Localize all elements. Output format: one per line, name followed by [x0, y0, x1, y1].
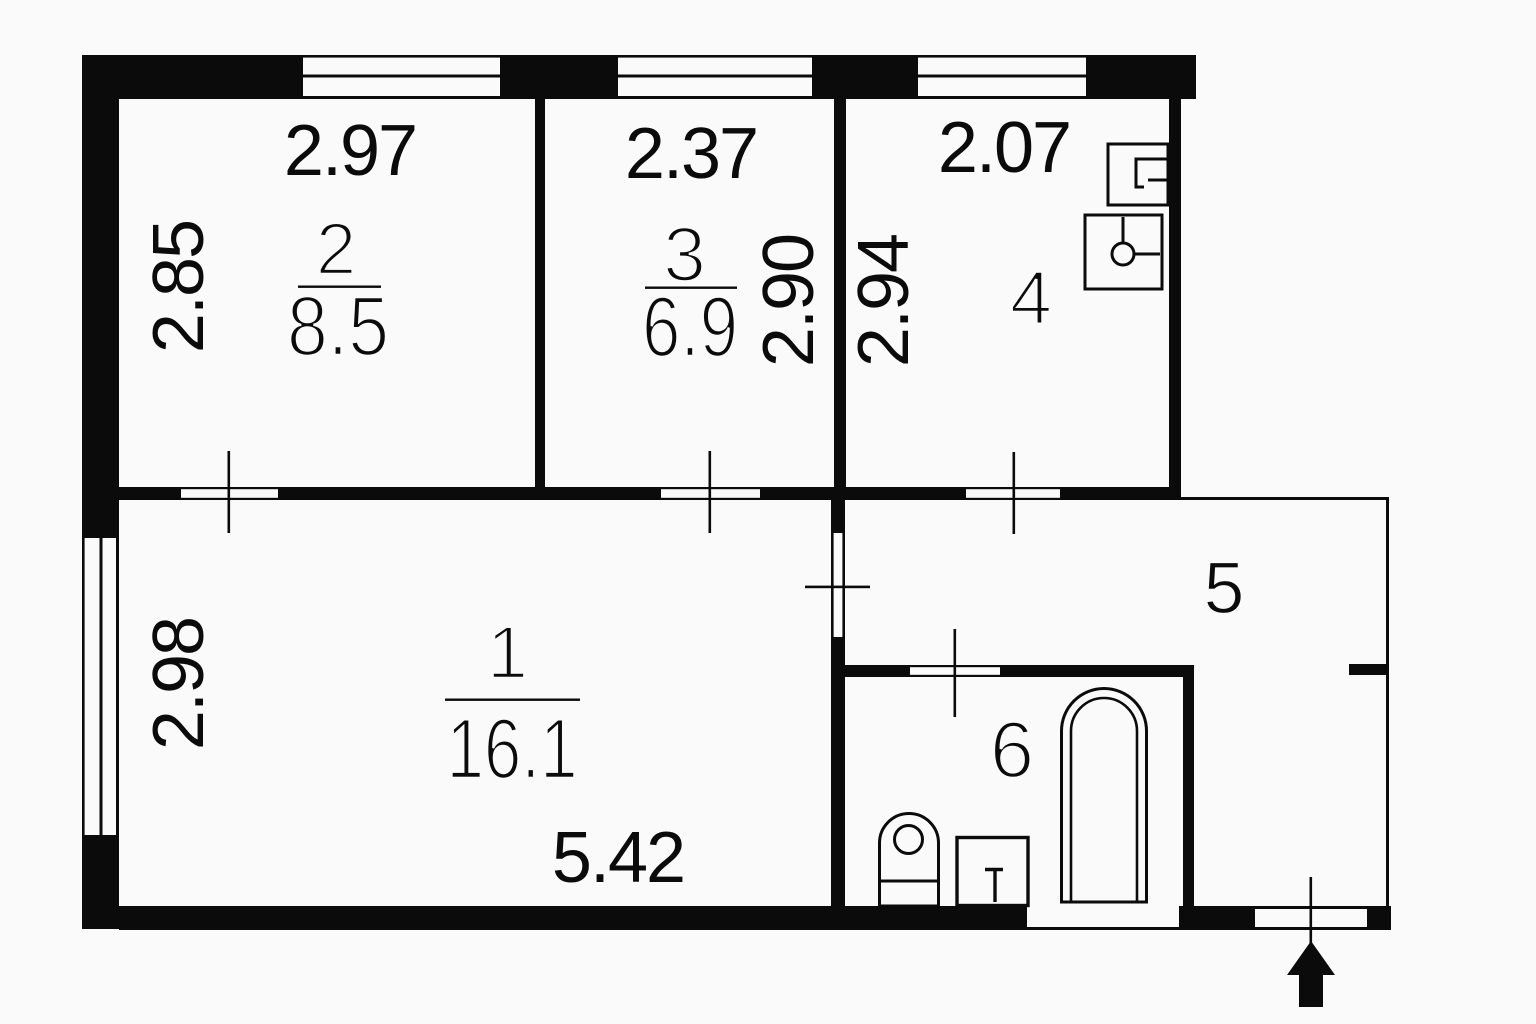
svg-text:5.42: 5.42: [552, 818, 684, 898]
svg-text:4: 4: [1010, 256, 1052, 341]
svg-text:2.94: 2.94: [844, 235, 924, 367]
svg-text:6: 6: [990, 705, 1035, 794]
svg-text:2.37: 2.37: [625, 114, 757, 194]
svg-text:2: 2: [316, 209, 357, 290]
svg-text:2.90: 2.90: [749, 235, 829, 367]
svg-text:8.5: 8.5: [287, 279, 389, 373]
svg-text:2.85: 2.85: [139, 221, 219, 353]
svg-text:1: 1: [487, 611, 528, 694]
svg-text:2.97: 2.97: [284, 111, 416, 191]
svg-text:2.98: 2.98: [139, 618, 219, 750]
svg-text:5: 5: [1204, 548, 1245, 629]
svg-text:6.9: 6.9: [642, 280, 738, 375]
svg-text:16.1: 16.1: [447, 702, 578, 797]
svg-text:2.07: 2.07: [938, 108, 1070, 188]
